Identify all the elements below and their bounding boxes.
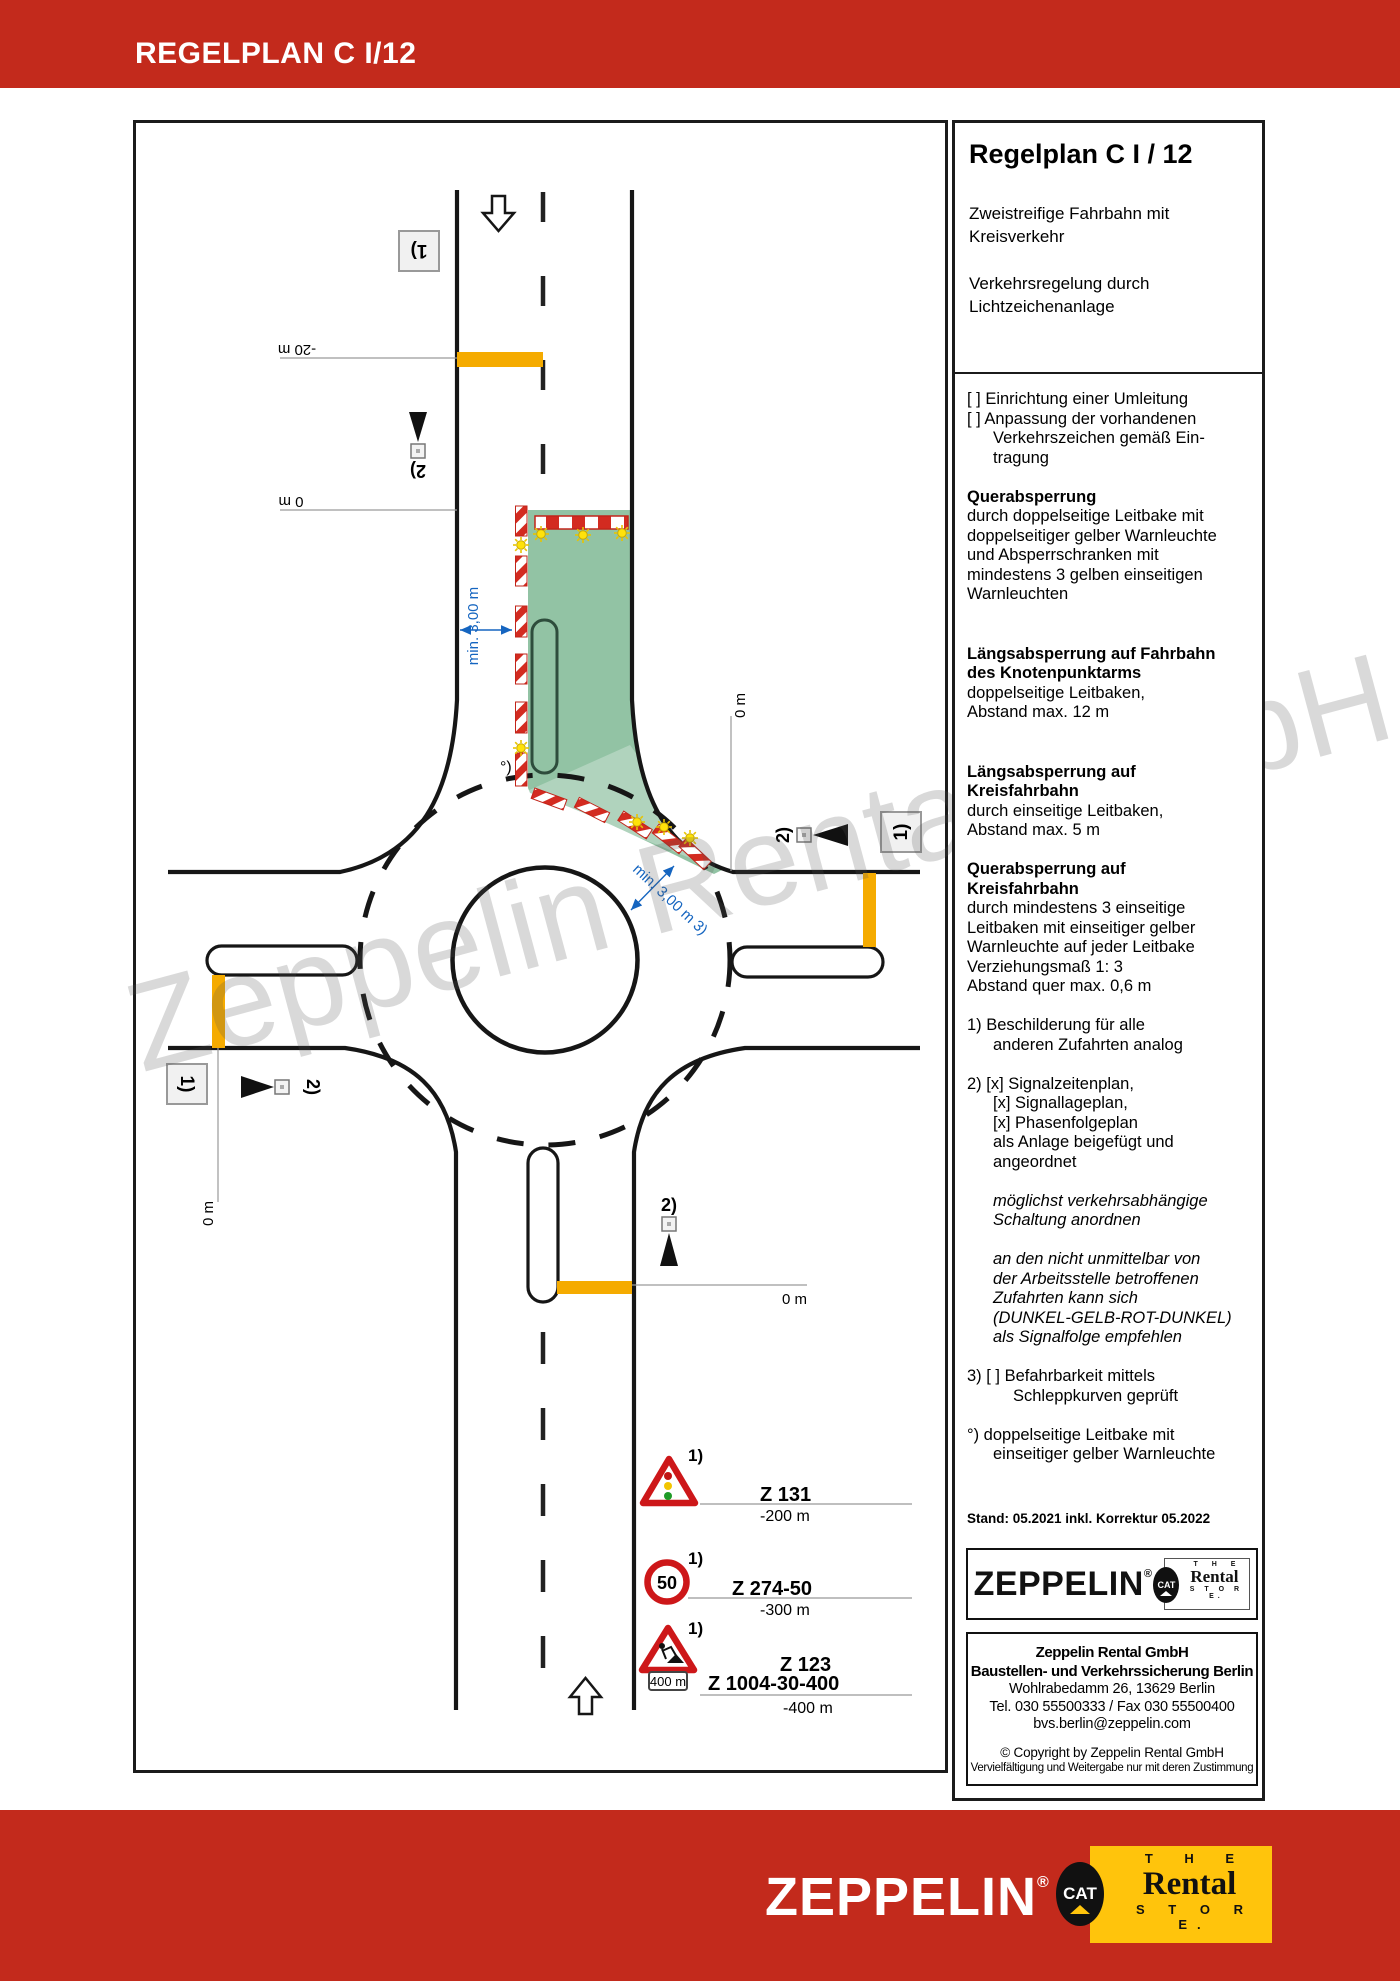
- panel-title: Regelplan C I / 12: [969, 139, 1248, 170]
- text-line: als Anlage beigefügt und: [967, 1133, 1252, 1153]
- text-line: Tel. 030 55500333 / Fax 030 55500400: [968, 1699, 1256, 1717]
- sign-z123: 1) 400 m: [642, 1619, 703, 1690]
- signal-symbol-south: 2): [660, 1195, 678, 1266]
- panel-subtitle-2: Verkehrsregelung durch Lichtzeichenanlag…: [969, 272, 1248, 318]
- text-line: Kreisfahrbahn: [967, 782, 1252, 802]
- text-line: [967, 1406, 1252, 1426]
- absperrschranke-barrier: [535, 516, 628, 529]
- label-z131: Z 131: [760, 1484, 811, 1506]
- stand-note: Stand: 05.2021 inkl. Korrektur 05.2022: [967, 1511, 1210, 1526]
- note1-box-east: 1): [881, 812, 921, 852]
- label-z1004: Z 1004-30-400: [708, 1673, 839, 1695]
- svg-text:2): 2): [410, 461, 426, 481]
- signal-symbol-west: 2): [241, 1076, 323, 1098]
- text-line: anderen Zufahrten analog: [967, 1036, 1252, 1056]
- cat-triangle-icon: [1160, 1591, 1172, 1596]
- text-line: Schaltung anordnen: [967, 1211, 1252, 1231]
- text-line: Verkehrszeichen gemäß Ein-: [967, 429, 1252, 449]
- svg-text:1): 1): [176, 1076, 197, 1093]
- text-line: möglichst verkehrsabhängige: [967, 1192, 1252, 1212]
- dim-0m-east: 0 m: [732, 693, 749, 718]
- svg-text:1): 1): [891, 824, 912, 841]
- text-line: der Arbeitsstelle betroffenen: [967, 1270, 1252, 1290]
- label-z131-dist: -200 m: [760, 1508, 810, 1525]
- footer-cat-rental-store-logo: CAT T H E Rental S T O R E.: [1090, 1846, 1272, 1943]
- text-line: tragung: [967, 449, 1252, 469]
- svg-text:1): 1): [688, 1619, 703, 1638]
- text-line: 1) Beschilderung für alle: [967, 1016, 1252, 1036]
- dim-minus20m: -20 m: [278, 341, 316, 358]
- text-line: [967, 1348, 1252, 1368]
- text-line: °) doppelseitige Leitbake mit: [967, 1426, 1252, 1446]
- text-line: Abstand max. 12 m: [967, 703, 1252, 723]
- text-line: [x] Signallageplan,: [967, 1094, 1252, 1114]
- cat-triangle-icon: [1070, 1905, 1090, 1914]
- svg-text:400 m: 400 m: [650, 1674, 686, 1689]
- svg-text:2): 2): [661, 1195, 677, 1215]
- text-line: doppelseitige Leitbaken,: [967, 684, 1252, 704]
- text-line: als Signalfolge empfehlen: [967, 1328, 1252, 1348]
- svg-text:1): 1): [688, 1549, 703, 1568]
- text-line: 3) [ ] Befahrbarkeit mittels: [967, 1367, 1252, 1387]
- text-line: Verziehungsmaß 1: 3: [967, 958, 1252, 978]
- measure-lines: [218, 358, 807, 1285]
- header-title: REGELPLAN C I/12: [135, 37, 416, 71]
- regelplan-page: REGELPLAN C I/12: [0, 0, 1400, 1981]
- text-line: Wohlrabedamm 26, 13629 Berlin: [968, 1681, 1256, 1699]
- text-line: [967, 468, 1252, 488]
- text-line: Längsabsperrung auf Fahrbahn: [967, 645, 1252, 665]
- text-line: Längsabsperrung auf: [967, 763, 1252, 783]
- text-line: durch mindestens 3 einseitige: [967, 899, 1252, 919]
- text-line: 2) [x] Signalzeitenplan,: [967, 1075, 1252, 1095]
- note1-box-west: 1): [167, 1064, 207, 1104]
- label-z1004-dist: -400 m: [783, 1700, 833, 1717]
- footer-zeppelin-logo: ZEPPELIN®: [765, 1866, 1050, 1928]
- text-line: Warnleuchten: [967, 585, 1252, 605]
- cat-oval-icon: CAT: [1056, 1862, 1104, 1926]
- text-line: [ ] Einrichtung einer Umleitung: [967, 390, 1252, 410]
- text-line: Schleppkurven geprüft: [967, 1387, 1252, 1407]
- panel-subtitle-1: Zweistreifige Fahrbahn mit Kreisverkehr: [969, 202, 1248, 248]
- text-line: (DUNKEL-GELB-ROT-DUNKEL): [967, 1309, 1252, 1329]
- text-line: Kreisfahrbahn: [967, 880, 1252, 900]
- text-line: [968, 1734, 1256, 1745]
- text-line: und Absperrschranken mit: [967, 546, 1252, 566]
- cat-rental-store-logo: CAT T H E Rental S T O R E.: [1164, 1558, 1250, 1610]
- text-line: [967, 841, 1252, 861]
- south-island: [528, 1148, 558, 1302]
- label-z274-dist: -300 m: [760, 1602, 810, 1619]
- down-arrow-icon: [483, 196, 514, 231]
- sign-z274-50: 50 1): [648, 1549, 704, 1602]
- svg-text:1): 1): [411, 240, 428, 261]
- text-line: doppelseitiger gelber Warnleuchte: [967, 527, 1252, 547]
- text-line: an den nicht unmittelbar von: [967, 1250, 1252, 1270]
- text-line: einseitiger gelber Warnleuchte: [967, 1445, 1252, 1465]
- company-address-box: Zeppelin Rental GmbHBaustellen- und Verk…: [966, 1632, 1258, 1786]
- text-line: © Copyright by Zeppelin Rental GmbH: [968, 1745, 1256, 1761]
- west-island: [207, 946, 357, 975]
- cat-oval-icon: CAT: [1153, 1567, 1179, 1603]
- east-island: [732, 947, 883, 977]
- text-line: Abstand quer max. 0,6 m: [967, 977, 1252, 997]
- text-line: durch einseitige Leitbaken,: [967, 802, 1252, 822]
- zeppelin-logo: ZEPPELIN®: [974, 1565, 1153, 1604]
- panel-notes: [ ] Einrichtung einer Umleitung[ ] Anpas…: [952, 372, 1265, 1538]
- text-line: Zufahrten kann sich: [967, 1289, 1252, 1309]
- label-z274: Z 274-50: [732, 1578, 812, 1600]
- dim-0m-south: 0 m: [782, 1291, 807, 1308]
- text-line: durch doppelseitige Leitbake mit: [967, 507, 1252, 527]
- note1-box-north: 1): [399, 231, 439, 271]
- svg-text:1): 1): [688, 1446, 703, 1465]
- panel-title-box: Regelplan C I / 12 Zweistreifige Fahrbah…: [952, 120, 1265, 375]
- roundabout-diagram: 2) 2) 2) 2) 1) 1): [133, 120, 948, 1773]
- dim-0m-west: 0 m: [200, 1201, 217, 1226]
- text-line: Vervielfältigung und Weitergabe nur mit …: [968, 1761, 1256, 1776]
- text-line: des Knotenpunktarms: [967, 664, 1252, 684]
- svg-text:2): 2): [303, 1079, 323, 1095]
- text-line: Leitbaken mit einseitiger gelber: [967, 919, 1252, 939]
- text-line: Abstand max. 5 m: [967, 821, 1252, 841]
- text-line: Querabsperrung auf: [967, 860, 1252, 880]
- central-island: [453, 868, 638, 1053]
- text-line: [967, 723, 1252, 763]
- text-line: angeordnet: [967, 1153, 1252, 1173]
- panel-logo-box: ZEPPELIN® CAT T H E Rental S T O R E.: [966, 1548, 1258, 1620]
- signal-symbol-north: 2): [409, 412, 427, 481]
- signal-symbol-east: 2): [773, 824, 848, 846]
- sign-z131: 1): [643, 1446, 703, 1503]
- header-bar: REGELPLAN C I/12: [0, 0, 1400, 88]
- text-line: mindestens 3 gelben einseitigen: [967, 566, 1252, 586]
- note-deg: °): [500, 759, 512, 776]
- up-arrow-icon: [570, 1678, 601, 1714]
- panel-notes-lines: [ ] Einrichtung einer Umleitung[ ] Anpas…: [967, 390, 1252, 1465]
- svg-text:2): 2): [773, 827, 793, 843]
- svg-text:50: 50: [657, 1573, 677, 1593]
- text-line: [967, 605, 1252, 645]
- text-line: Querabsperrung: [967, 488, 1252, 508]
- dim-0m-north: 0 m: [278, 493, 303, 510]
- text-line: [967, 1231, 1252, 1251]
- text-line: Warnleuchte auf jeder Leitbake: [967, 938, 1252, 958]
- text-line: [967, 997, 1252, 1017]
- text-line: Zeppelin Rental GmbH: [968, 1643, 1256, 1662]
- svg-text:min. 3,00 m: min. 3,00 m: [465, 587, 482, 665]
- text-line: [967, 1055, 1252, 1075]
- text-line: [x] Phasenfolgeplan: [967, 1114, 1252, 1134]
- text-line: [ ] Anpassung der vorhandenen: [967, 410, 1252, 430]
- text-line: [967, 1172, 1252, 1192]
- text-line: Baustellen- und Verkehrssicherung Berlin: [968, 1662, 1256, 1681]
